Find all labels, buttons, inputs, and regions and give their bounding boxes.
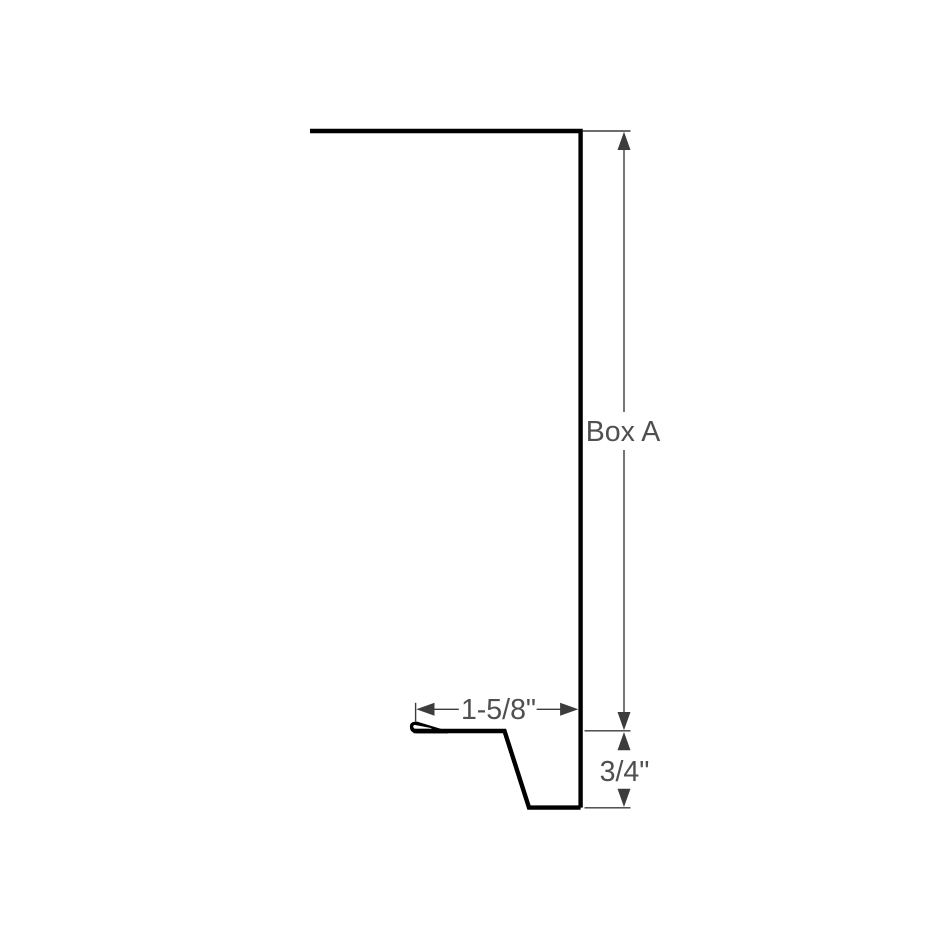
svg-text:3/4": 3/4" [600, 756, 650, 788]
svg-text:Box A: Box A [586, 416, 660, 448]
svg-text:1-5/8": 1-5/8" [461, 694, 536, 726]
